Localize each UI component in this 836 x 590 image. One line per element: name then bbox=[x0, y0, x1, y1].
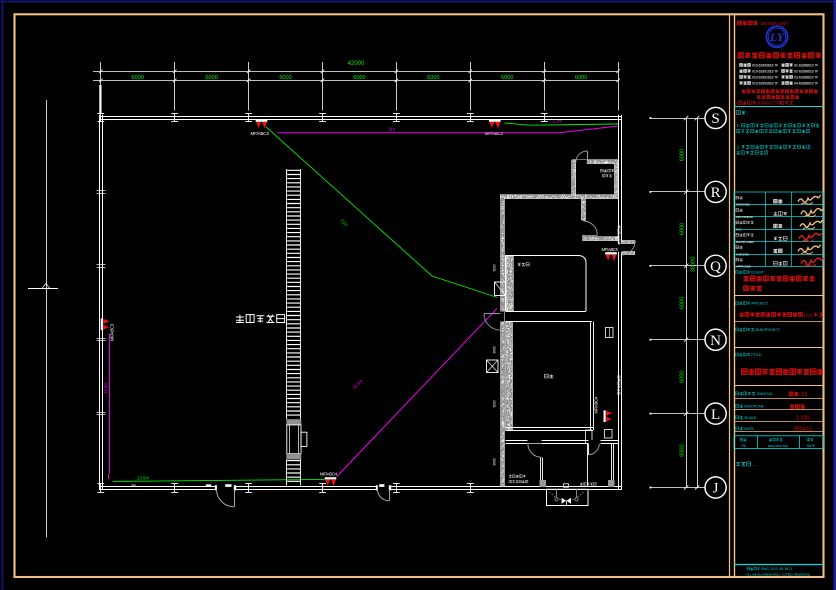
svg-text:MAJOR CHIEF: MAJOR CHIEF bbox=[736, 240, 754, 244]
svg-text:6000: 6000 bbox=[501, 75, 513, 81]
svg-text:6000: 6000 bbox=[680, 370, 686, 382]
svg-text:42000: 42000 bbox=[348, 61, 365, 67]
svg-text:DATE: DATE bbox=[807, 444, 815, 448]
svg-text:6000: 6000 bbox=[680, 149, 686, 161]
svg-text:P.I.C: P.I.C bbox=[736, 228, 741, 232]
svg-text:/DWG NO.: /DWG NO. bbox=[757, 392, 773, 396]
svg-text:MF/ABC5: MF/ABC5 bbox=[602, 247, 619, 252]
svg-text:6000: 6000 bbox=[132, 75, 144, 81]
svg-text:N: N bbox=[710, 333, 721, 349]
svg-text:S: S bbox=[711, 111, 719, 127]
svg-text:Q: Q bbox=[710, 259, 721, 275]
svg-text:6000: 6000 bbox=[205, 75, 217, 81]
svg-text:5m: 5m bbox=[389, 127, 395, 132]
svg-text:CHECKED: CHECKED bbox=[736, 252, 749, 256]
svg-text:11.5m: 11.5m bbox=[103, 382, 108, 394]
svg-text:R: R bbox=[711, 185, 721, 201]
svg-text:APPROVED: APPROVED bbox=[736, 265, 751, 269]
svg-text:04-63398619 7F: 04-63398619 7F bbox=[794, 82, 819, 86]
svg-text:2.: 2. bbox=[737, 145, 741, 150]
svg-text:DWG, 2013. 08. NO.1: DWG, 2013. 08. NO.1 bbox=[761, 567, 792, 571]
svg-text:J: J bbox=[713, 481, 719, 497]
svg-text:DESIGN UNIT: DESIGN UNIT bbox=[761, 21, 789, 26]
svg-text:MF/ABC3: MF/ABC3 bbox=[110, 323, 115, 341]
svg-text:1.: 1. bbox=[737, 123, 741, 128]
svg-text:6000: 6000 bbox=[575, 75, 587, 81]
svg-text:6000: 6000 bbox=[427, 75, 439, 81]
svg-text:010-63392618 7F: 010-63392618 7F bbox=[752, 76, 779, 80]
svg-text:03-63398619 7F: 03-63398619 7F bbox=[794, 76, 819, 80]
svg-text:(A1): (A1) bbox=[804, 313, 813, 318]
svg-text:6000: 6000 bbox=[680, 297, 686, 309]
svg-text:3000: 3000 bbox=[493, 264, 497, 271]
svg-text:3000: 3000 bbox=[493, 400, 497, 407]
svg-text:L: L bbox=[711, 407, 720, 423]
svg-text:1.1m: 1.1m bbox=[552, 119, 562, 124]
svg-text:ALL IDEAS IMMEDIATELY COPIED,: ALL IDEAS IMMEDIATELY COPIED, RESERVED. bbox=[746, 573, 811, 577]
svg-text::: : bbox=[747, 112, 748, 117]
svg-text:MF/ABC4: MF/ABC4 bbox=[594, 396, 599, 413]
svg-text:DESCRIPTION: DESCRIPTION bbox=[768, 444, 789, 448]
svg-text:20090317TN: 20090317TN bbox=[757, 101, 781, 106]
svg-text:1:100: 1:100 bbox=[796, 416, 810, 422]
svg-text:/PROJECT:: /PROJECT: bbox=[751, 302, 768, 306]
svg-text:/DISCIPLINE:: /DISCIPLINE: bbox=[744, 405, 765, 409]
svg-text:010-63390618 7F: 010-63390618 7F bbox=[752, 64, 779, 68]
svg-text:/DATE:: /DATE: bbox=[744, 427, 755, 431]
svg-text:3000: 3000 bbox=[493, 346, 497, 353]
svg-text:MF/ABC3: MF/ABC3 bbox=[251, 131, 270, 136]
svg-text:MF/ABC4: MF/ABC4 bbox=[320, 472, 338, 477]
svg-text:/TITLE:: /TITLE: bbox=[751, 353, 762, 357]
svg-text:13.5m: 13.5m bbox=[137, 476, 150, 481]
svg-text:3000: 3000 bbox=[493, 458, 497, 465]
svg-text:6000: 6000 bbox=[680, 223, 686, 235]
svg-text:LY: LY bbox=[769, 30, 786, 44]
svg-text:6000: 6000 bbox=[353, 75, 365, 81]
svg-text:010-63393618 7F: 010-63393618 7F bbox=[752, 82, 779, 86]
svg-text:-03: -03 bbox=[800, 392, 807, 398]
svg-text:02-63398619 7F: 02-63398619 7F bbox=[794, 70, 819, 74]
svg-text:PROOFREAD: PROOFREAD bbox=[736, 215, 753, 219]
svg-text:/SCALE:: /SCALE: bbox=[744, 416, 757, 420]
svg-text:/SUB-PROJECT:: /SUB-PROJECT: bbox=[755, 328, 780, 332]
svg-text:010-63391618 7F: 010-63391618 7F bbox=[752, 70, 779, 74]
svg-text:30000: 30000 bbox=[691, 257, 697, 273]
svg-text:MF/ABC3: MF/ABC3 bbox=[485, 131, 504, 136]
svg-text:....: .... bbox=[753, 462, 757, 467]
svg-text:DESIGNED: DESIGNED bbox=[736, 203, 750, 207]
svg-text:6000: 6000 bbox=[680, 444, 686, 456]
svg-text:6m: 6m bbox=[132, 484, 137, 488]
svg-text:6000: 6000 bbox=[279, 75, 291, 81]
svg-text:01-63398619 7F: 01-63398619 7F bbox=[794, 64, 819, 68]
svg-text:/CLIENT:: /CLIENT: bbox=[751, 271, 765, 275]
